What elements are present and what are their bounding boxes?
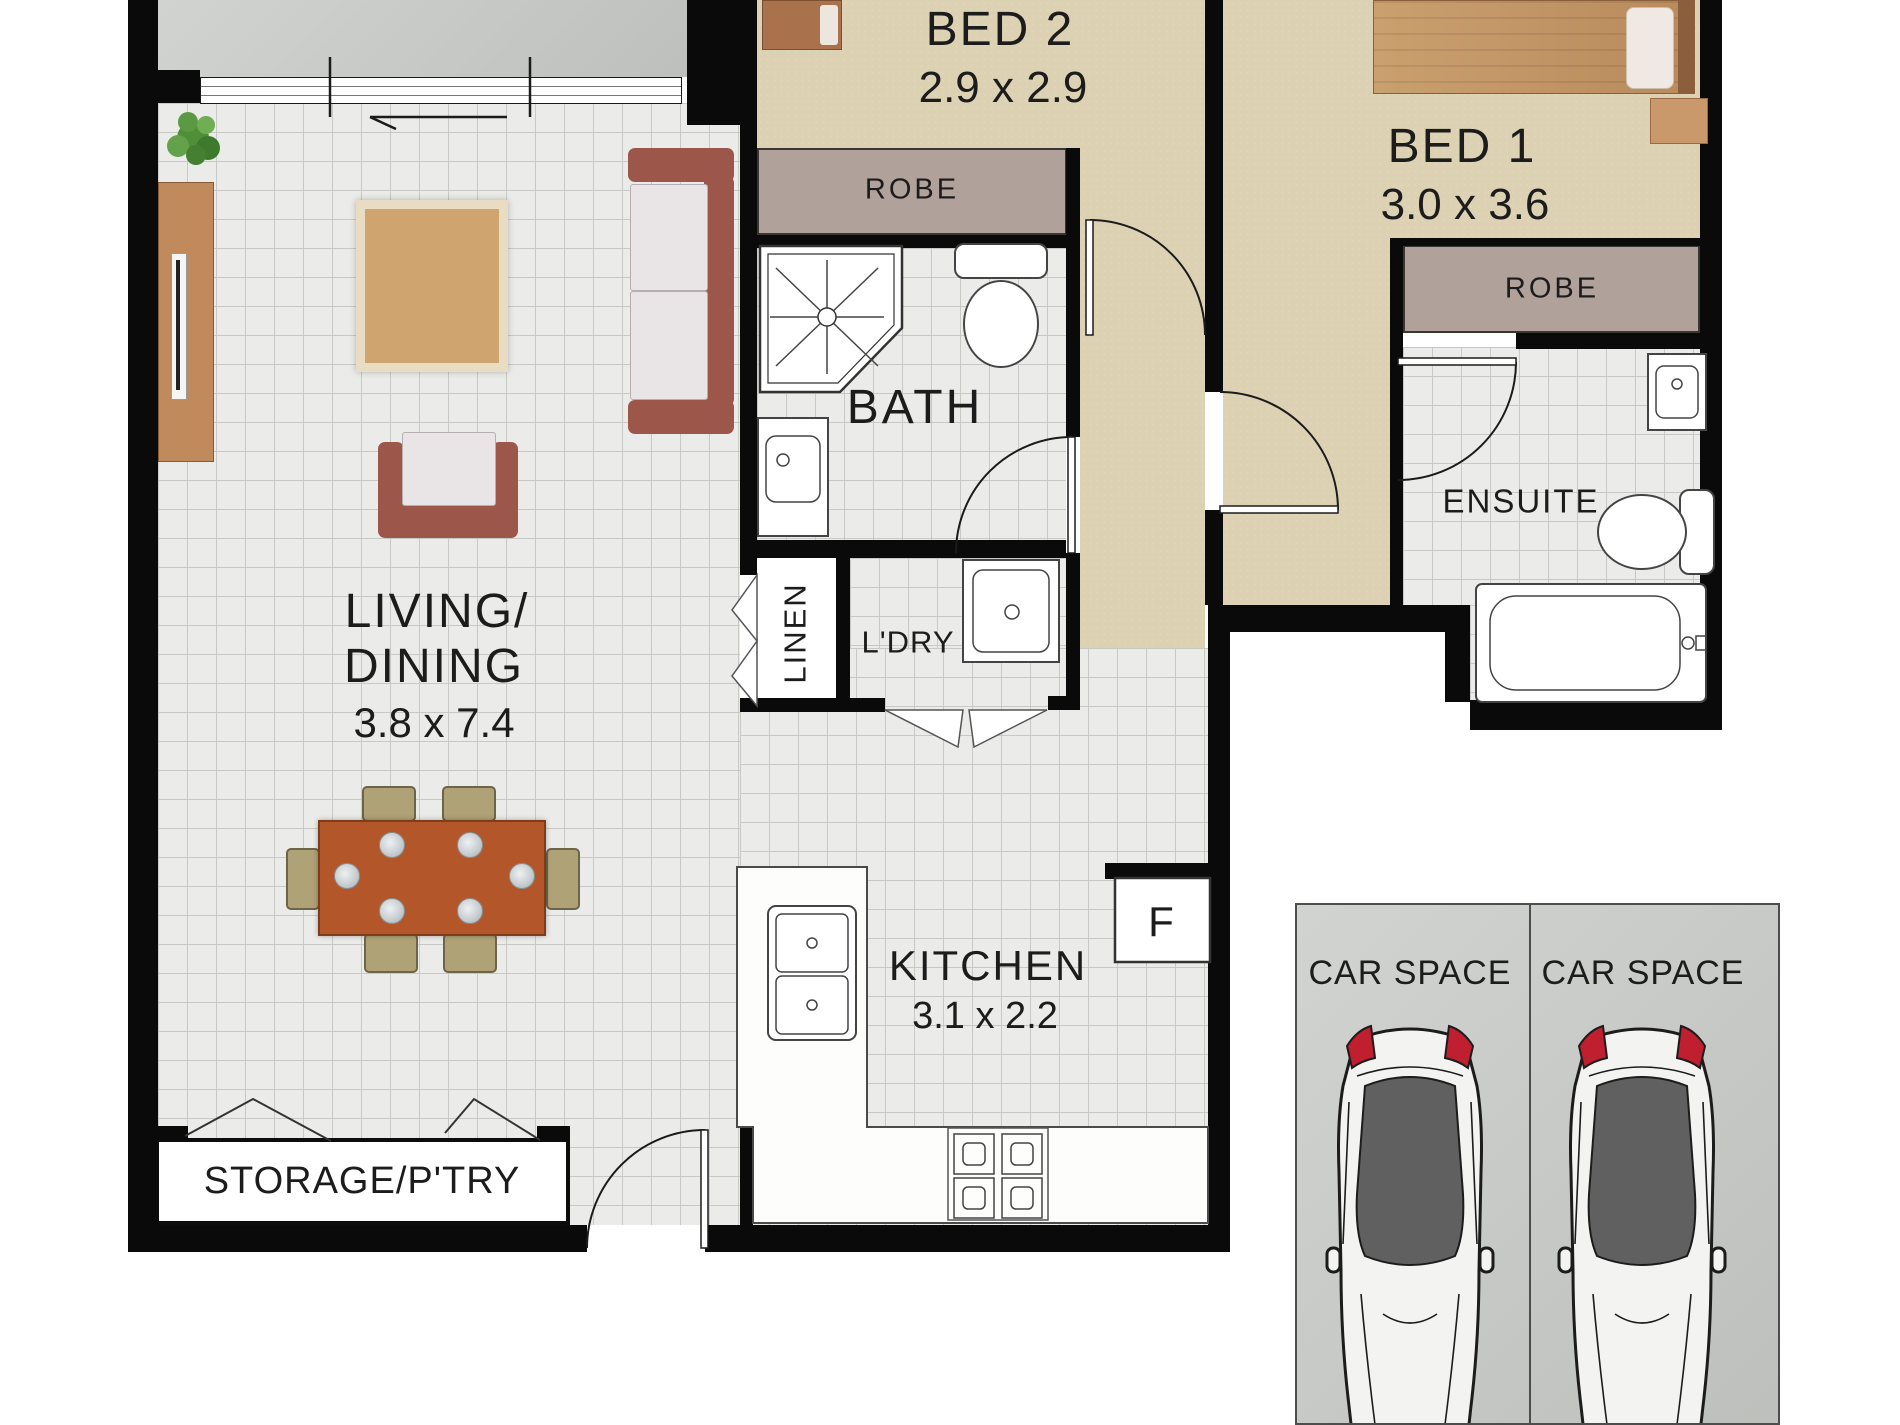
- bed1-label: BED 1: [1388, 123, 1537, 171]
- kitchen-label: KITCHEN: [889, 945, 1087, 987]
- living-label-line2: DINING: [344, 643, 524, 691]
- fridge-label: F: [1148, 901, 1174, 943]
- bed2-label: BED 2: [926, 6, 1075, 54]
- bathtub-icon: [1476, 584, 1706, 702]
- robe-bed1-label: ROBE: [1505, 275, 1599, 304]
- sink-icon: [758, 418, 828, 536]
- laundry-label: L'DRY: [861, 627, 954, 658]
- toilet-icon: [955, 244, 1047, 367]
- kitchen-sink-icon: [768, 906, 856, 1040]
- living-label-line1: LIVING/: [345, 588, 530, 636]
- bifold-linen-icon: [732, 575, 757, 706]
- window-mullion: [330, 57, 530, 117]
- ensuite-toilet-icon: [1598, 490, 1714, 574]
- door-swing-bath-icon: [956, 437, 1075, 553]
- cooktop-icon: [948, 1128, 1048, 1220]
- bed1-dims: 3.0 x 3.6: [1381, 183, 1550, 227]
- bed2-dims: 2.9 x 2.9: [919, 66, 1088, 110]
- sliding-door-arrow-icon: [370, 117, 507, 129]
- living-dims: 3.8 x 7.4: [353, 702, 514, 744]
- door-swing-entry-icon: [587, 1130, 708, 1248]
- bath-label: BATH: [847, 384, 983, 432]
- bifold-laundry-icon: [885, 710, 1047, 747]
- bifold-storage-icon: [185, 1099, 540, 1141]
- door-swing-bed1-icon: [1220, 392, 1338, 513]
- robe-bed2-label: ROBE: [865, 176, 959, 205]
- shower-icon: [760, 246, 902, 392]
- ensuite-label: ENSUITE: [1442, 485, 1599, 518]
- door-swing-bed2-icon: [1086, 220, 1205, 335]
- door-swing-ensuite-icon: [1398, 358, 1516, 480]
- floor-plan: CAR SPACE CAR SPACE BED 2 2.9 x 2.9 R: [0, 0, 1900, 1425]
- kitchen-dims: 3.1 x 2.2: [912, 997, 1058, 1035]
- linen-label: LINEN: [780, 582, 811, 683]
- ensuite-sink-icon: [1648, 354, 1706, 430]
- storage-label: STORAGE/P'TRY: [204, 1162, 521, 1200]
- laundry-tub-icon: [963, 560, 1059, 662]
